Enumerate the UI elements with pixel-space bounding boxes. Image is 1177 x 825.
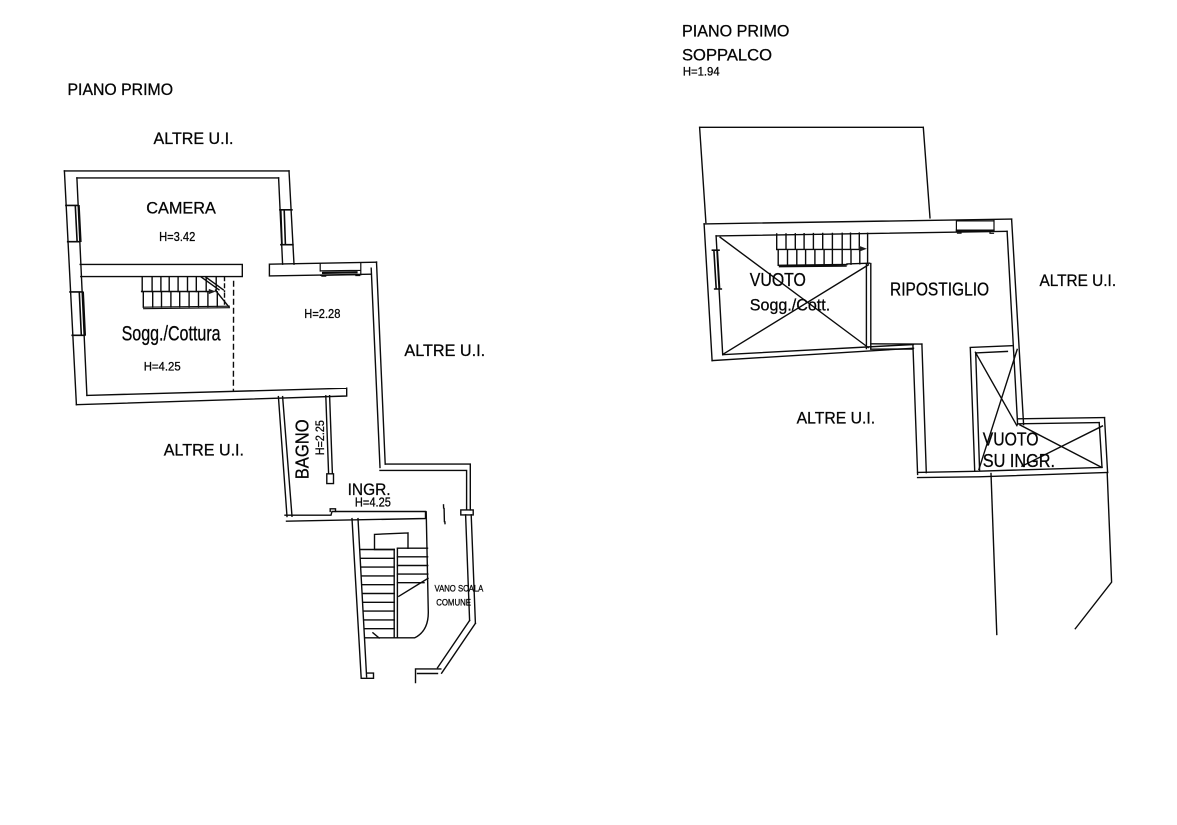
- svg-text:VANO SCALA: VANO SCALA: [435, 583, 484, 593]
- svg-text:H=2.28: H=2.28: [304, 307, 340, 321]
- svg-text:PIANO PRIMO: PIANO PRIMO: [682, 22, 789, 41]
- svg-text:PIANO PRIMO: PIANO PRIMO: [68, 81, 174, 99]
- svg-text:VUOTO: VUOTO: [750, 270, 806, 290]
- svg-text:H=4.25: H=4.25: [355, 494, 391, 509]
- svg-text:ALTRE U.I.: ALTRE U.I.: [1040, 272, 1117, 290]
- svg-text:CAMERA: CAMERA: [146, 199, 216, 218]
- svg-text:RIPOSTIGLIO: RIPOSTIGLIO: [890, 279, 989, 299]
- svg-text:BAGNO: BAGNO: [293, 419, 313, 479]
- svg-text:H=4.25: H=4.25: [144, 359, 181, 373]
- svg-text:VUOTO: VUOTO: [983, 430, 1039, 450]
- svg-text:ALTRE U.I.: ALTRE U.I.: [154, 130, 234, 148]
- svg-text:ALTRE U.I.: ALTRE U.I.: [164, 441, 244, 459]
- svg-text:Sogg./Cott.: Sogg./Cott.: [750, 295, 830, 314]
- svg-text:ALTRE U.I.: ALTRE U.I.: [797, 409, 876, 427]
- svg-text:COMUNE: COMUNE: [436, 598, 471, 608]
- svg-text:H=2.25: H=2.25: [315, 420, 327, 455]
- svg-text:ALTRE U.I.: ALTRE U.I.: [404, 342, 485, 360]
- svg-text:SU INGR.: SU INGR.: [983, 451, 1055, 471]
- svg-text:H=3.42: H=3.42: [159, 229, 195, 244]
- svg-text:Sogg./Cottura: Sogg./Cottura: [122, 323, 221, 346]
- svg-text:H=1.94: H=1.94: [683, 65, 720, 79]
- svg-text:SOPPALCO: SOPPALCO: [682, 45, 772, 64]
